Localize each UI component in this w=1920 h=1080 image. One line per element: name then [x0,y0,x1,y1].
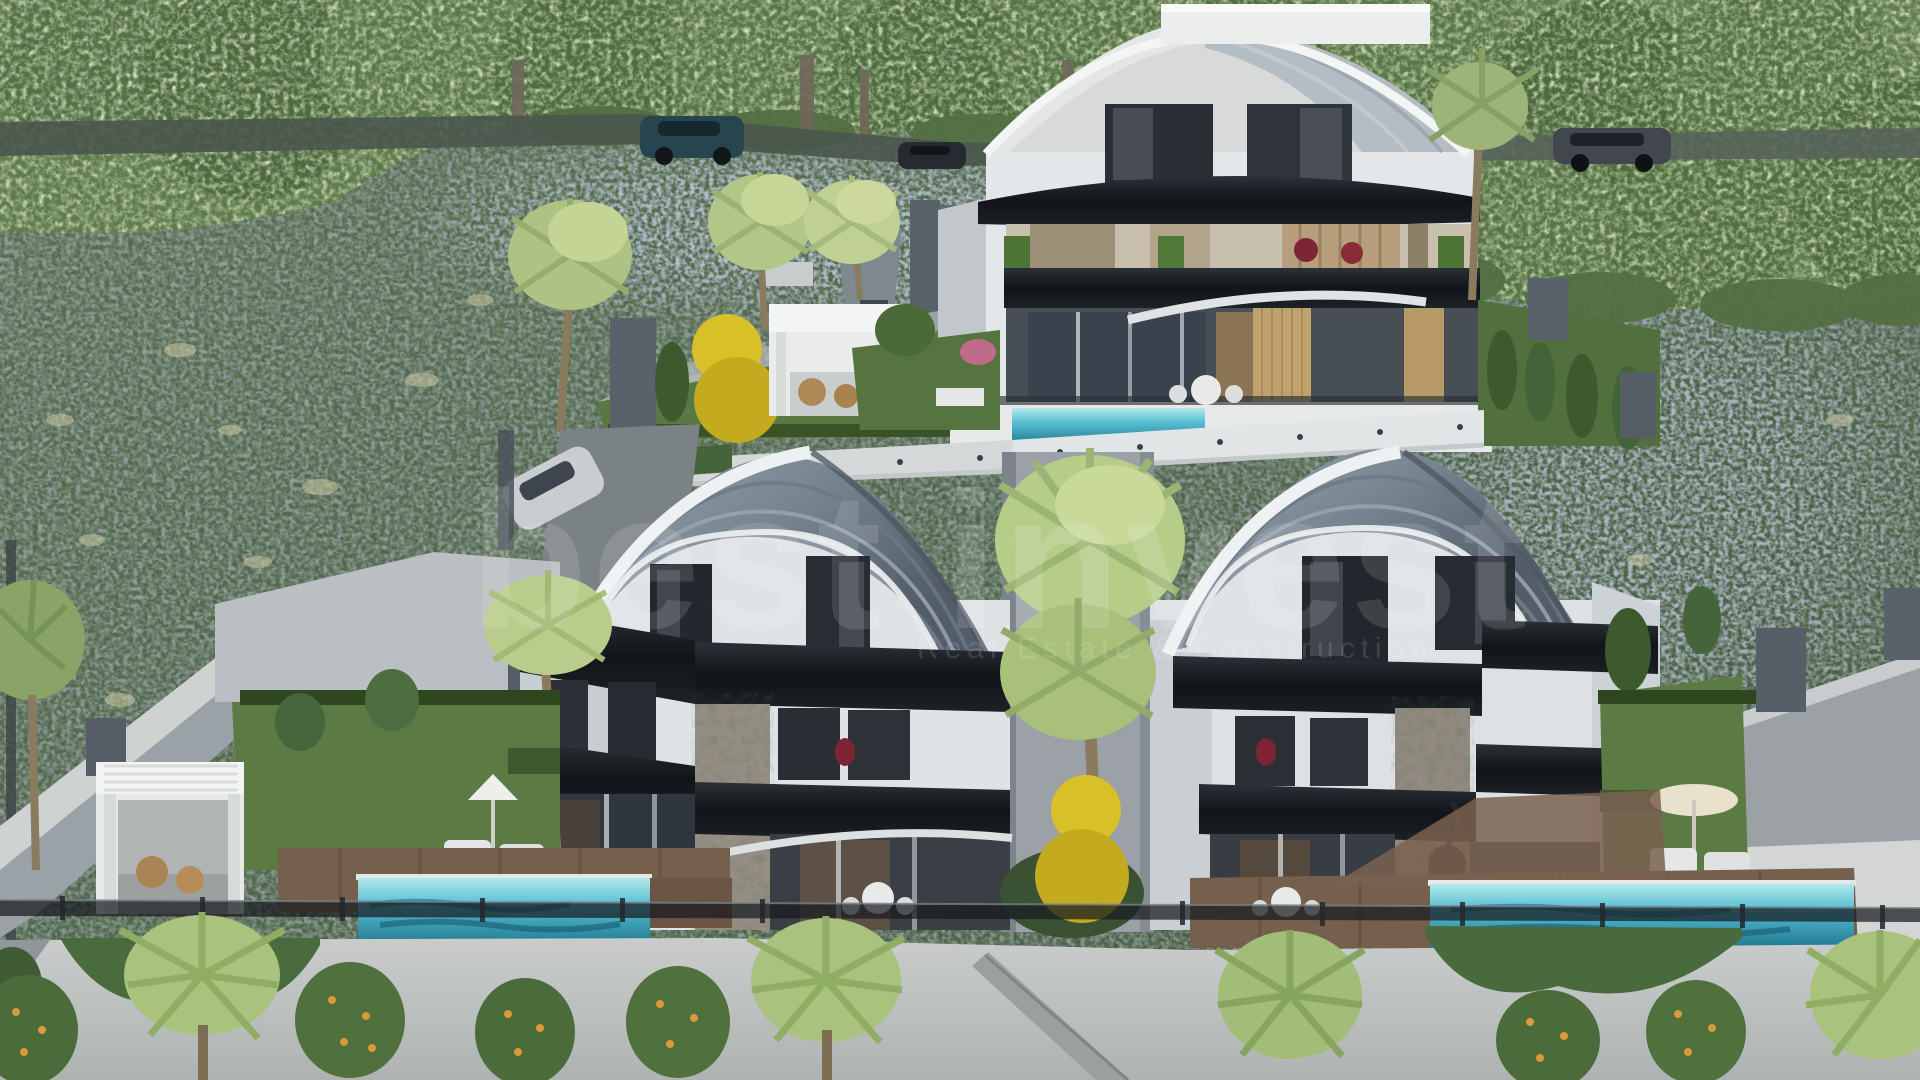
svg-text:Real Estate & Construction: Real Estate & Construction [917,632,1433,665]
